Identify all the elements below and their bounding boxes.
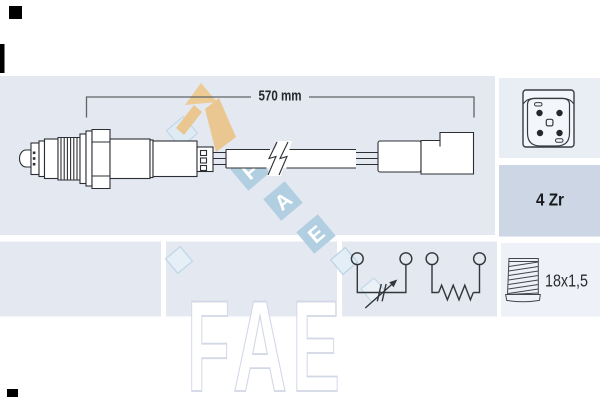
- svg-text:18x1,5: 18x1,5: [545, 271, 588, 291]
- svg-text:A: A: [233, 273, 287, 400]
- svg-text:4 Zr: 4 Zr: [536, 189, 564, 209]
- svg-text:F: F: [187, 273, 230, 400]
- svg-text:570 mm: 570 mm: [259, 89, 302, 105]
- svg-text:E: E: [292, 273, 340, 400]
